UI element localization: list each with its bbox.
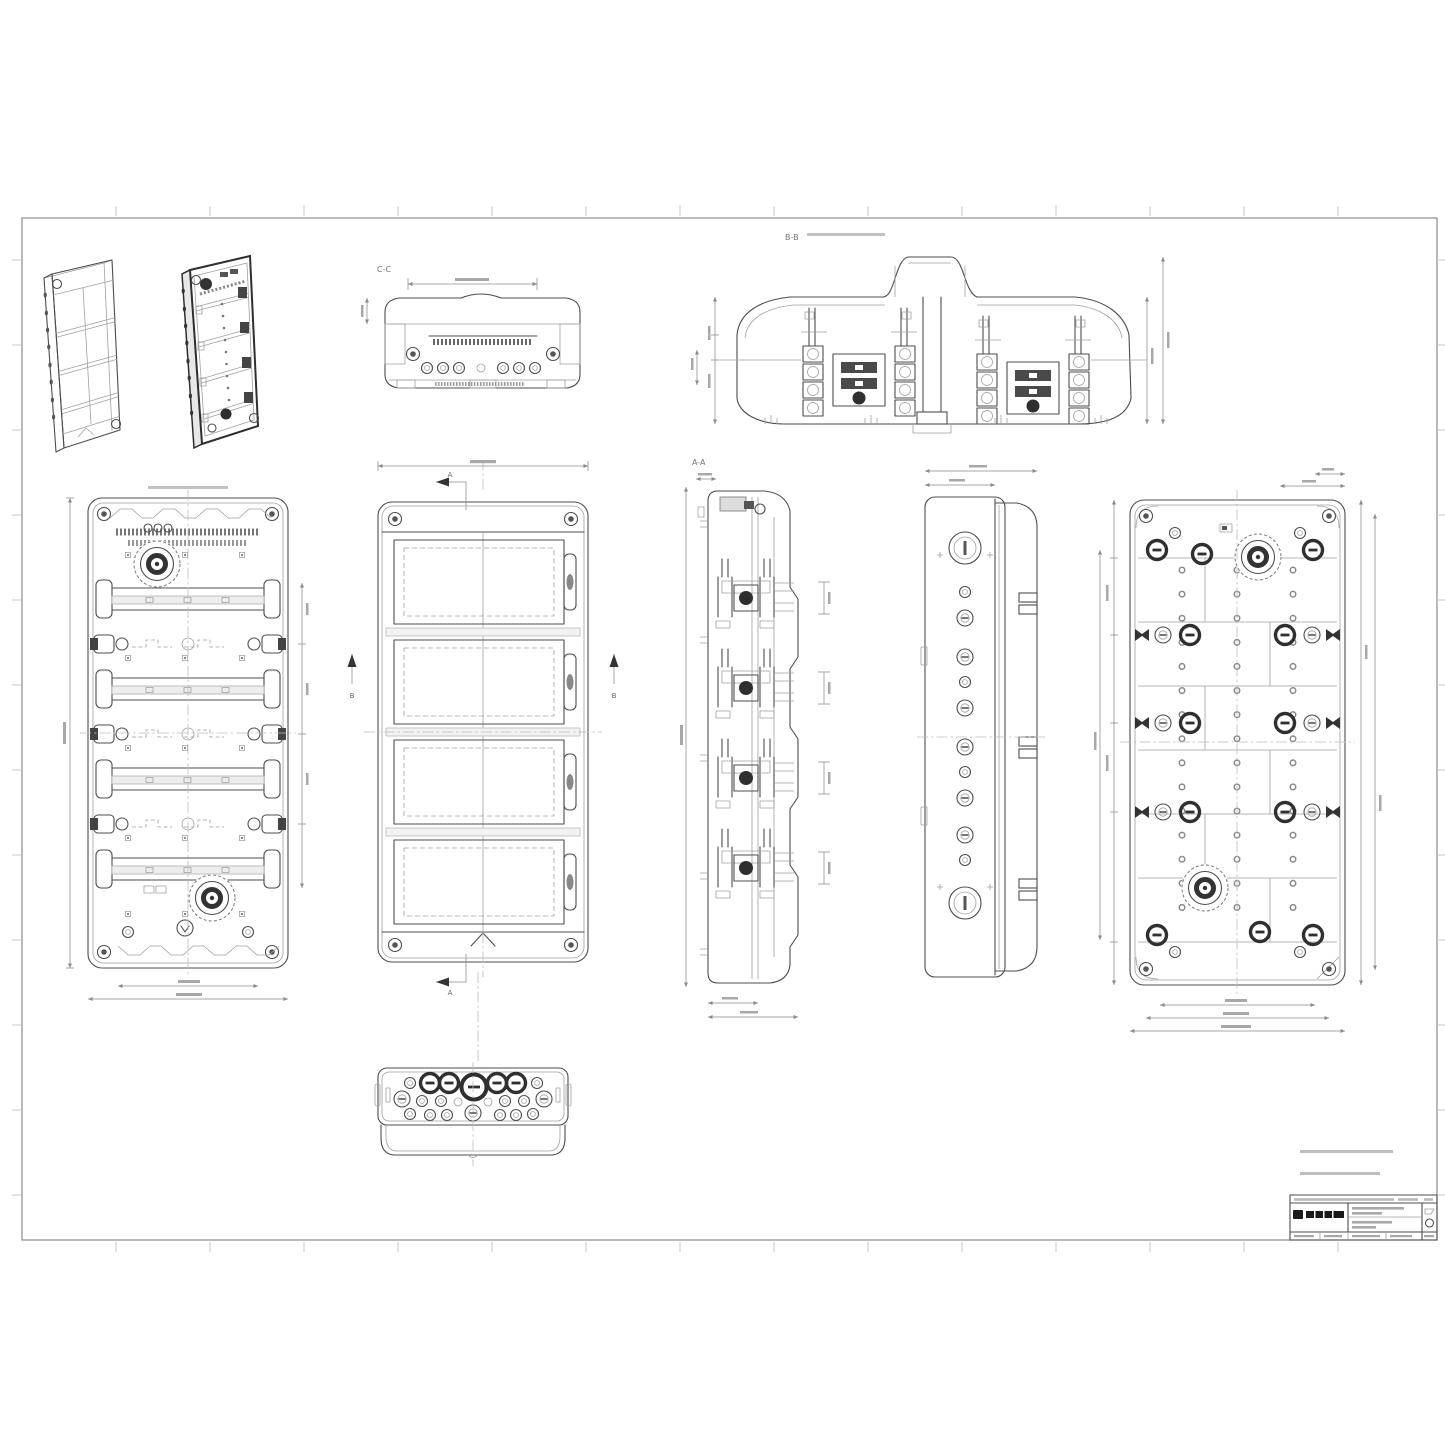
projection-symbol-icon — [1425, 1209, 1434, 1227]
drawing-sheet: C-C B-B — [0, 0, 1445, 1445]
interior-front-view — [63, 486, 309, 999]
door-handle — [567, 774, 574, 790]
cut-arrow-bottom-label: A — [448, 989, 453, 997]
iso-view-closed — [44, 260, 121, 452]
cable-gland-top — [133, 540, 181, 588]
company-logo — [1293, 1210, 1344, 1219]
side-section-view-aa: A-A — [680, 458, 831, 1017]
front-view: A A B B — [348, 460, 619, 997]
bottom-view — [375, 1062, 571, 1166]
side-knockouts — [949, 532, 981, 919]
section-bb-label: B-B — [785, 233, 799, 242]
dimension-lines — [680, 473, 831, 1017]
cut-arrow-left-label: B — [350, 692, 355, 700]
cut-arrow-right-label: B — [612, 692, 617, 700]
rear-gland-top — [1234, 533, 1282, 581]
section-bb-note-bar — [807, 233, 885, 236]
drawing-notes — [1300, 1150, 1393, 1175]
door-window-row-1 — [394, 540, 576, 624]
door-handle — [567, 574, 574, 590]
side-view — [917, 465, 1045, 977]
section-view-cc: C-C — [361, 265, 580, 388]
cut-arrow-top-label: A — [448, 471, 453, 479]
door-window-row-2 — [394, 640, 576, 724]
rear-view — [1094, 468, 1382, 1031]
section-aa-label: A-A — [692, 458, 706, 467]
dimension-lines — [925, 465, 1037, 485]
view-caption-bar — [148, 486, 228, 489]
drawing-page: C-C B-B — [0, 0, 1445, 1445]
iso-view-open — [182, 256, 259, 448]
dimension-lines — [691, 257, 1170, 424]
door-window-row-3 — [394, 740, 576, 824]
door-window-row-4 — [394, 840, 576, 924]
door-handle — [567, 874, 574, 890]
rear-gland-bottom — [1181, 864, 1229, 912]
note-line-2 — [1300, 1172, 1380, 1175]
door-handle — [567, 674, 574, 690]
cable-gland-bottom — [188, 874, 236, 922]
section-view-bb: B-B — [691, 233, 1170, 433]
section-cc-label: C-C — [377, 265, 391, 274]
title-block — [1290, 1195, 1437, 1240]
dimension-lines — [361, 278, 537, 324]
note-line-1 — [1300, 1150, 1393, 1153]
